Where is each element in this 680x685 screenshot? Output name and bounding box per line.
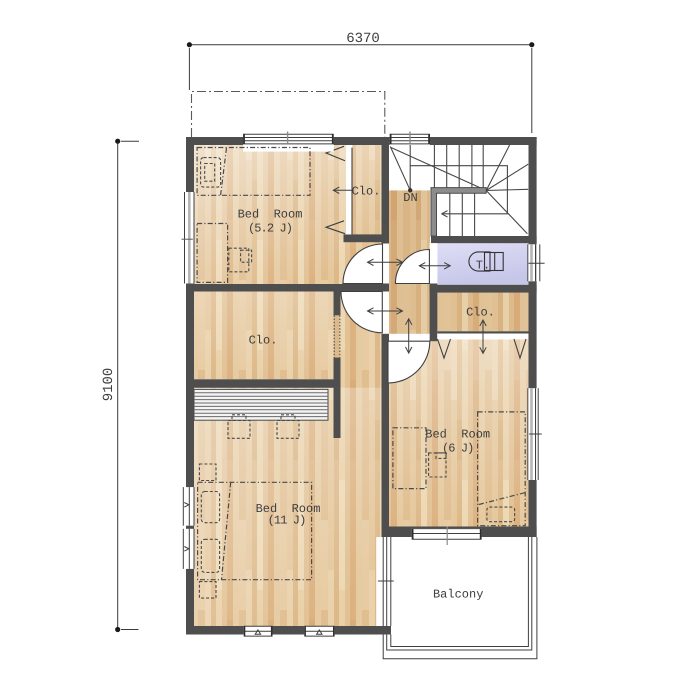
svg-text:6370: 6370 [346,31,380,47]
svg-text:Clo.: Clo. [352,185,381,199]
svg-text:(11 J): (11 J) [268,514,306,528]
svg-text:(5.2 J): (5.2 J) [248,222,292,236]
svg-text:Bed Room: Bed Room [238,208,303,222]
svg-text:Bed Room: Bed Room [425,427,490,441]
svg-text:Clo.: Clo. [249,334,278,348]
svg-text:(6 J): (6 J) [442,442,474,456]
svg-text:9100: 9100 [101,368,117,402]
svg-text:DN: DN [403,191,417,205]
svg-text:Balcony: Balcony [433,588,483,602]
svg-text:T.: T. [476,259,490,273]
svg-text:Clo.: Clo. [466,306,495,320]
